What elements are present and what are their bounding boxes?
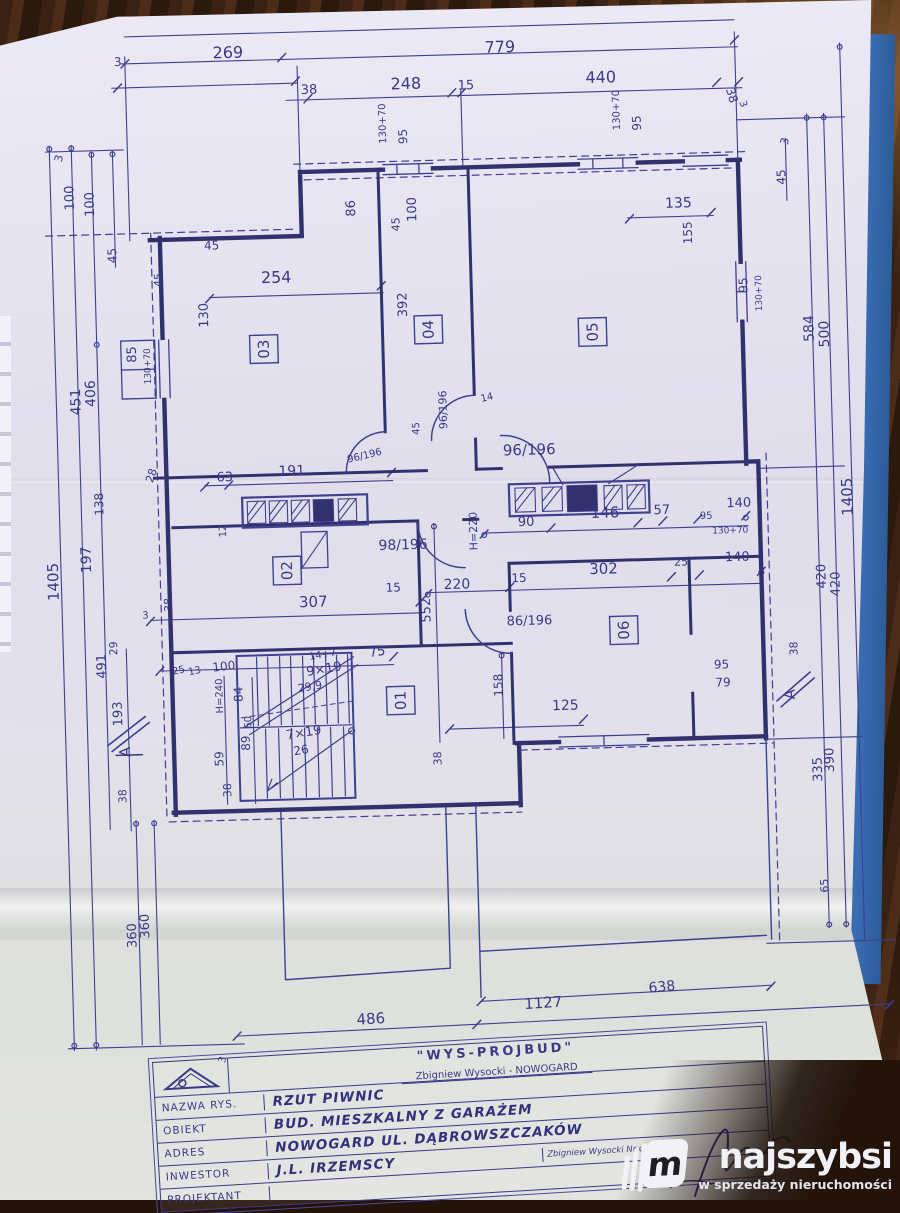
dim-label: 45 [389,217,402,231]
dim-label: 90 [518,515,535,530]
dim-label: 100 [62,185,78,210]
dim-label: 96/196 [503,440,556,459]
dim-label: 45 [774,169,788,185]
dim-label: 15 [457,78,474,93]
row-label: INWESTOR [159,1163,269,1185]
dim-label: 500 [816,320,833,347]
dim-label: 191 [278,463,305,480]
dim-label: 269 [212,43,243,63]
dim-label: 392 [395,292,411,317]
dim-label: 135 [665,195,692,212]
dim-label: 3 [142,610,149,621]
dim-label: 420 [828,571,844,596]
dim-label: 13 [187,665,202,678]
dim-label: 38 [221,783,234,797]
section-markers [106,672,816,756]
dim-label: 130+70 [143,348,154,385]
dimension-labels: 32697793824815440383130+709545130+709534… [29,26,871,1069]
dim-label: 491 [94,654,110,679]
dim-label: 3 [114,55,122,69]
dim-label: 86/196 [506,613,552,629]
dim-label: 89 [239,735,253,751]
dim-label: 75 [368,644,387,662]
dim-label: H=240 [214,678,226,713]
dim-label: 155 [681,221,696,244]
dim-label: 451 [68,388,85,415]
dim-label: 96/196 [346,447,383,466]
row-label: PROJEKTANT [161,1186,271,1208]
dim-label: 65 [818,878,831,892]
dim-label: 100 [82,192,98,217]
dim-label: 1405 [838,477,857,516]
dim-label: 95 [700,511,713,522]
dim-label: 84 [231,686,245,702]
dim-label: 193 [111,701,127,726]
dim-label: 57 [653,503,670,518]
dim-label: 100 [405,197,421,222]
room-label: 05 [583,322,602,342]
dim-label: 140 [725,550,750,566]
room-label: 04 [419,320,438,340]
dim-label: 335 [811,757,827,782]
logo-letter: m [642,1138,689,1188]
dim-label: 406 [83,380,100,407]
dim-label: 552 [419,598,435,623]
room-label: 02 [278,561,297,581]
dim-label: H=220 [467,512,481,551]
row-label: ADRES [158,1140,268,1162]
dim-label: 14 [480,391,495,405]
company-logo [153,1058,230,1096]
dim-label: 158 [491,674,506,697]
dim-label: 125 [552,697,579,714]
floor-plan-drawing: 030405020106 32697793824815440383130+709… [0,0,900,1200]
chimney-blocks [241,464,650,569]
dim-label: 1405 [44,563,63,602]
dim-label: 38 [301,83,318,98]
dim-label: 140 [726,496,751,512]
dim-label: 28 [143,467,160,484]
watermark-brand: najszybsi [719,1140,892,1175]
dim-label: 38 [787,641,800,655]
dim-label: 79 [715,675,731,689]
dim-label: 486 [356,1009,386,1029]
interior-walls [146,159,766,753]
dim-label: 29,9 [297,678,323,695]
house-roof-icon [161,1063,220,1092]
dim-label: 248 [390,74,421,94]
dim-label: A [781,688,799,699]
dim-label: 15 [511,571,527,585]
dim-label: 302 [589,559,618,578]
watermark-tagline: w sprzedaży nieruchomości [698,1177,892,1192]
exterior-walls [148,159,768,815]
dim-label: 25 [674,555,688,568]
dim-label: 95 [630,115,644,131]
dim-label: A [116,746,134,757]
dim-label: 29 [107,641,120,655]
watermark: m najszybsi w sprzedaży nieruchomości [624,1140,892,1192]
dim-label: 86 [344,200,359,217]
dim-label: 146 [590,503,619,522]
terrace-outline [279,738,773,1003]
dim-label: 220 [443,576,470,593]
dim-label: 3 [778,136,792,146]
dim-label: 254 [261,267,292,287]
dim-label: 12 [218,524,229,537]
dim-label: 130 [197,303,213,328]
dim-label: 95 [396,129,410,145]
room-label: 03 [255,339,274,359]
dim-label: 63 [216,470,233,485]
dim-label: 584 [801,315,818,342]
dim-label: 98/196 [378,537,428,554]
najszybsi-logo-icon: m [621,1138,689,1193]
dim-label: 15 [385,580,401,594]
dim-label: 59 [212,751,226,767]
dim-label: 26 [292,742,309,758]
dim-label: 3 [52,154,66,164]
dim-label: 1127 [524,993,563,1013]
room-label: 06 [615,620,634,640]
dim-label: 95 [736,277,750,293]
dim-label: 25 [171,664,186,677]
dim-label: 60 [243,716,254,729]
dim-label: 45 [152,273,165,287]
dim-label: 638 [648,978,676,997]
dim-label: 38 [431,751,444,765]
dim-label: 130+70 [611,90,623,130]
dim-label: 96/196 [436,390,450,429]
dim-label: 440 [585,67,616,87]
dim-label: 45 [411,422,422,435]
row-label: NAZWA RYS. [155,1094,265,1116]
dim-label: 100 [212,658,236,675]
row-label: OBIEKT [157,1117,267,1139]
dim-label: 130+70 [377,103,389,143]
dim-label: 130+70 [712,526,749,537]
dim-label: 138 [92,493,107,516]
plan-group: 030405020106 32697793824815440383130+709… [29,16,898,1069]
dim-label: 420 [814,564,830,589]
dim-label: 45 [204,238,220,252]
dim-label: 38 [116,789,129,803]
dim-label: 360 [125,923,141,948]
dim-label: 95 [714,657,730,671]
dim-label: 45 [105,248,119,264]
dim-label: 85 [125,346,140,363]
dim-label: 38 [162,598,175,612]
dim-label: 130+70 [754,275,765,312]
room-label: 01 [392,691,411,711]
dim-label: 779 [484,37,515,57]
dim-label: 197 [78,546,95,573]
dim-label: 307 [299,592,328,611]
